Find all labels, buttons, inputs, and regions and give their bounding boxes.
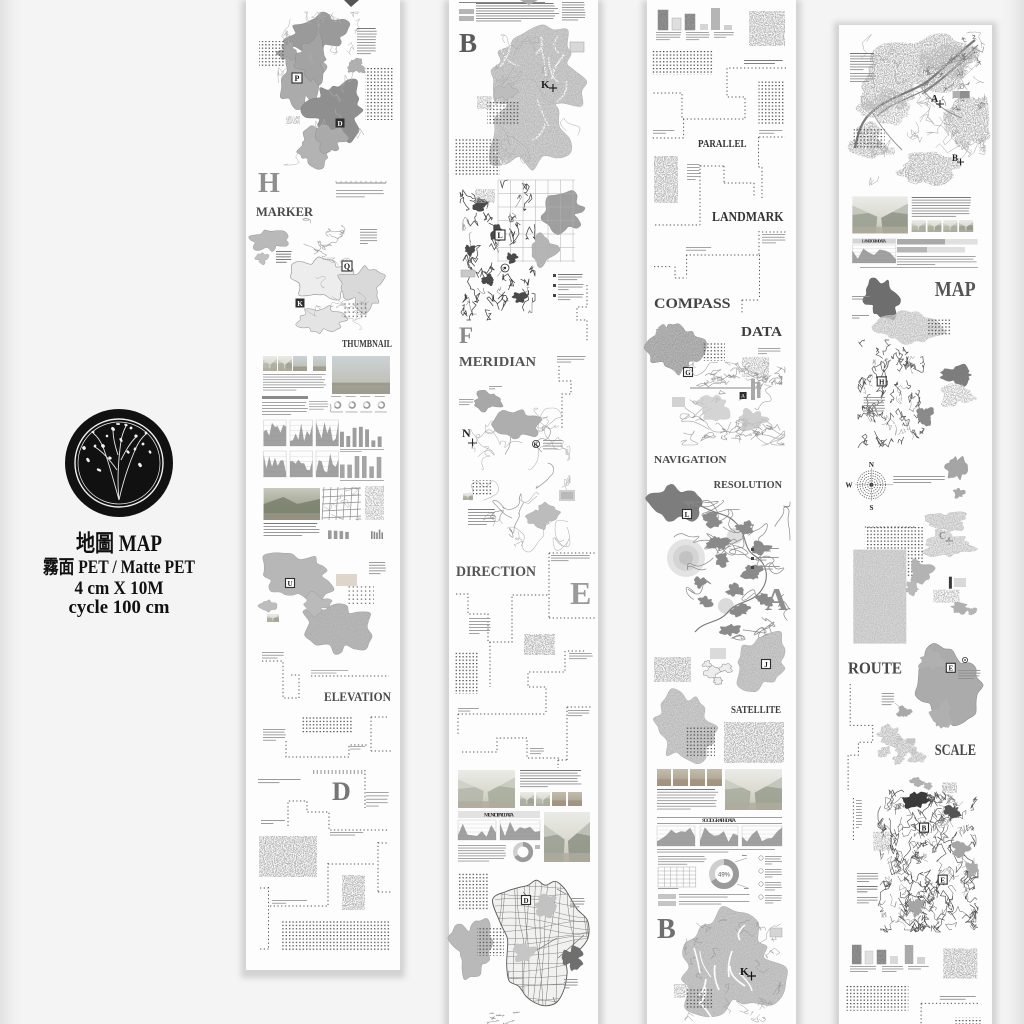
svg-text:MUNICIPAL DATA: MUNICIPAL DATA bbox=[484, 813, 514, 819]
svg-text:K: K bbox=[533, 442, 538, 449]
svg-text:F: F bbox=[459, 323, 473, 348]
svg-text:DIRECTION: DIRECTION bbox=[456, 564, 536, 580]
svg-text:K: K bbox=[541, 79, 550, 91]
svg-text:W: W bbox=[846, 482, 853, 490]
svg-text:J: J bbox=[764, 661, 768, 669]
svg-text:B: B bbox=[922, 825, 927, 833]
svg-text:ROUTE: ROUTE bbox=[848, 659, 902, 678]
svg-text:SATELLITE: SATELLITE bbox=[731, 705, 781, 716]
svg-text:4 cm X 10M: 4 cm X 10M bbox=[75, 578, 164, 599]
svg-text:LANDFORM DATA: LANDFORM DATA bbox=[862, 239, 886, 244]
svg-text:Q: Q bbox=[344, 262, 350, 271]
svg-text:H: H bbox=[879, 378, 885, 386]
svg-text:RESOLUTION: RESOLUTION bbox=[714, 480, 783, 491]
svg-text:cycle 100 cm: cycle 100 cm bbox=[69, 597, 170, 618]
svg-text:B: B bbox=[459, 28, 477, 58]
svg-text:L: L bbox=[497, 231, 502, 240]
svg-text:LANDMARK: LANDMARK bbox=[712, 210, 784, 225]
svg-text:B: B bbox=[657, 914, 676, 945]
svg-text:D: D bbox=[337, 120, 342, 128]
svg-text:A: A bbox=[741, 393, 745, 399]
svg-text:MERIDIAN: MERIDIAN bbox=[459, 355, 536, 370]
svg-text:霧面 PET / Matte PET: 霧面 PET / Matte PET bbox=[42, 556, 195, 578]
svg-text:H: H bbox=[258, 168, 280, 199]
svg-text:U: U bbox=[287, 580, 292, 588]
svg-text:D: D bbox=[332, 777, 351, 806]
svg-text:ELEVATION: ELEVATION bbox=[324, 689, 392, 704]
svg-text:SCALE: SCALE bbox=[935, 742, 976, 759]
svg-text:N: N bbox=[869, 461, 874, 469]
svg-text:E: E bbox=[948, 665, 953, 673]
svg-text:49%: 49% bbox=[718, 873, 731, 879]
svg-text:地圖 MAP: 地圖 MAP bbox=[76, 531, 162, 556]
svg-text:THUMBNAIL: THUMBNAIL bbox=[342, 339, 392, 350]
svg-text:S: S bbox=[869, 504, 873, 512]
svg-text:SOCIOGRAPH DATA: SOCIOGRAPH DATA bbox=[702, 818, 736, 824]
svg-text:E: E bbox=[570, 575, 591, 611]
svg-text:N: N bbox=[462, 426, 471, 440]
svg-text:DATA: DATA bbox=[741, 325, 783, 340]
svg-text:K: K bbox=[297, 300, 303, 308]
svg-text:MARKER: MARKER bbox=[256, 204, 314, 219]
svg-text:A: A bbox=[931, 94, 939, 105]
svg-text:MAP: MAP bbox=[935, 277, 976, 301]
svg-text:L: L bbox=[685, 511, 690, 519]
svg-text:E: E bbox=[940, 877, 945, 885]
svg-text:P: P bbox=[295, 74, 300, 83]
svg-text:PARALLEL: PARALLEL bbox=[698, 139, 747, 150]
svg-text:COMPASS: COMPASS bbox=[654, 296, 731, 312]
svg-text:D: D bbox=[523, 897, 528, 905]
svg-text:A: A bbox=[765, 581, 788, 617]
svg-text:NAVIGATION: NAVIGATION bbox=[654, 455, 727, 466]
